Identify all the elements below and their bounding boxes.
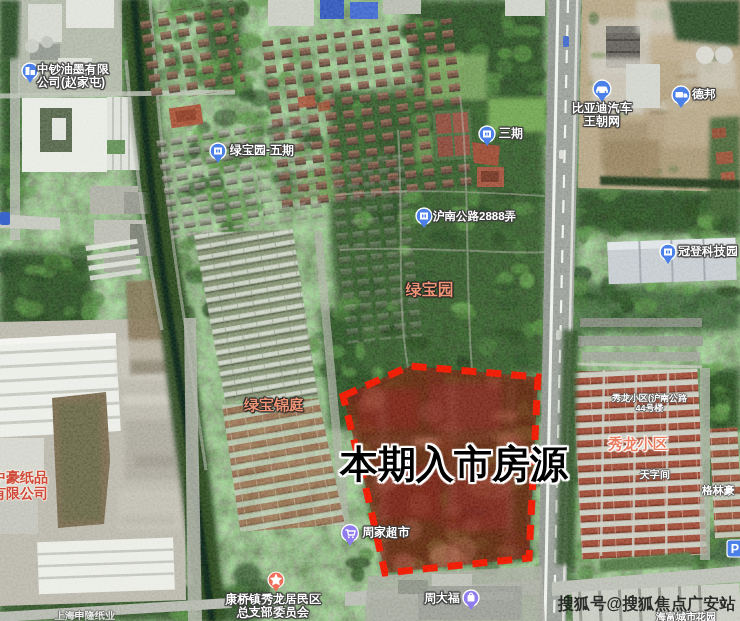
svg-text:P: P xyxy=(731,542,739,556)
